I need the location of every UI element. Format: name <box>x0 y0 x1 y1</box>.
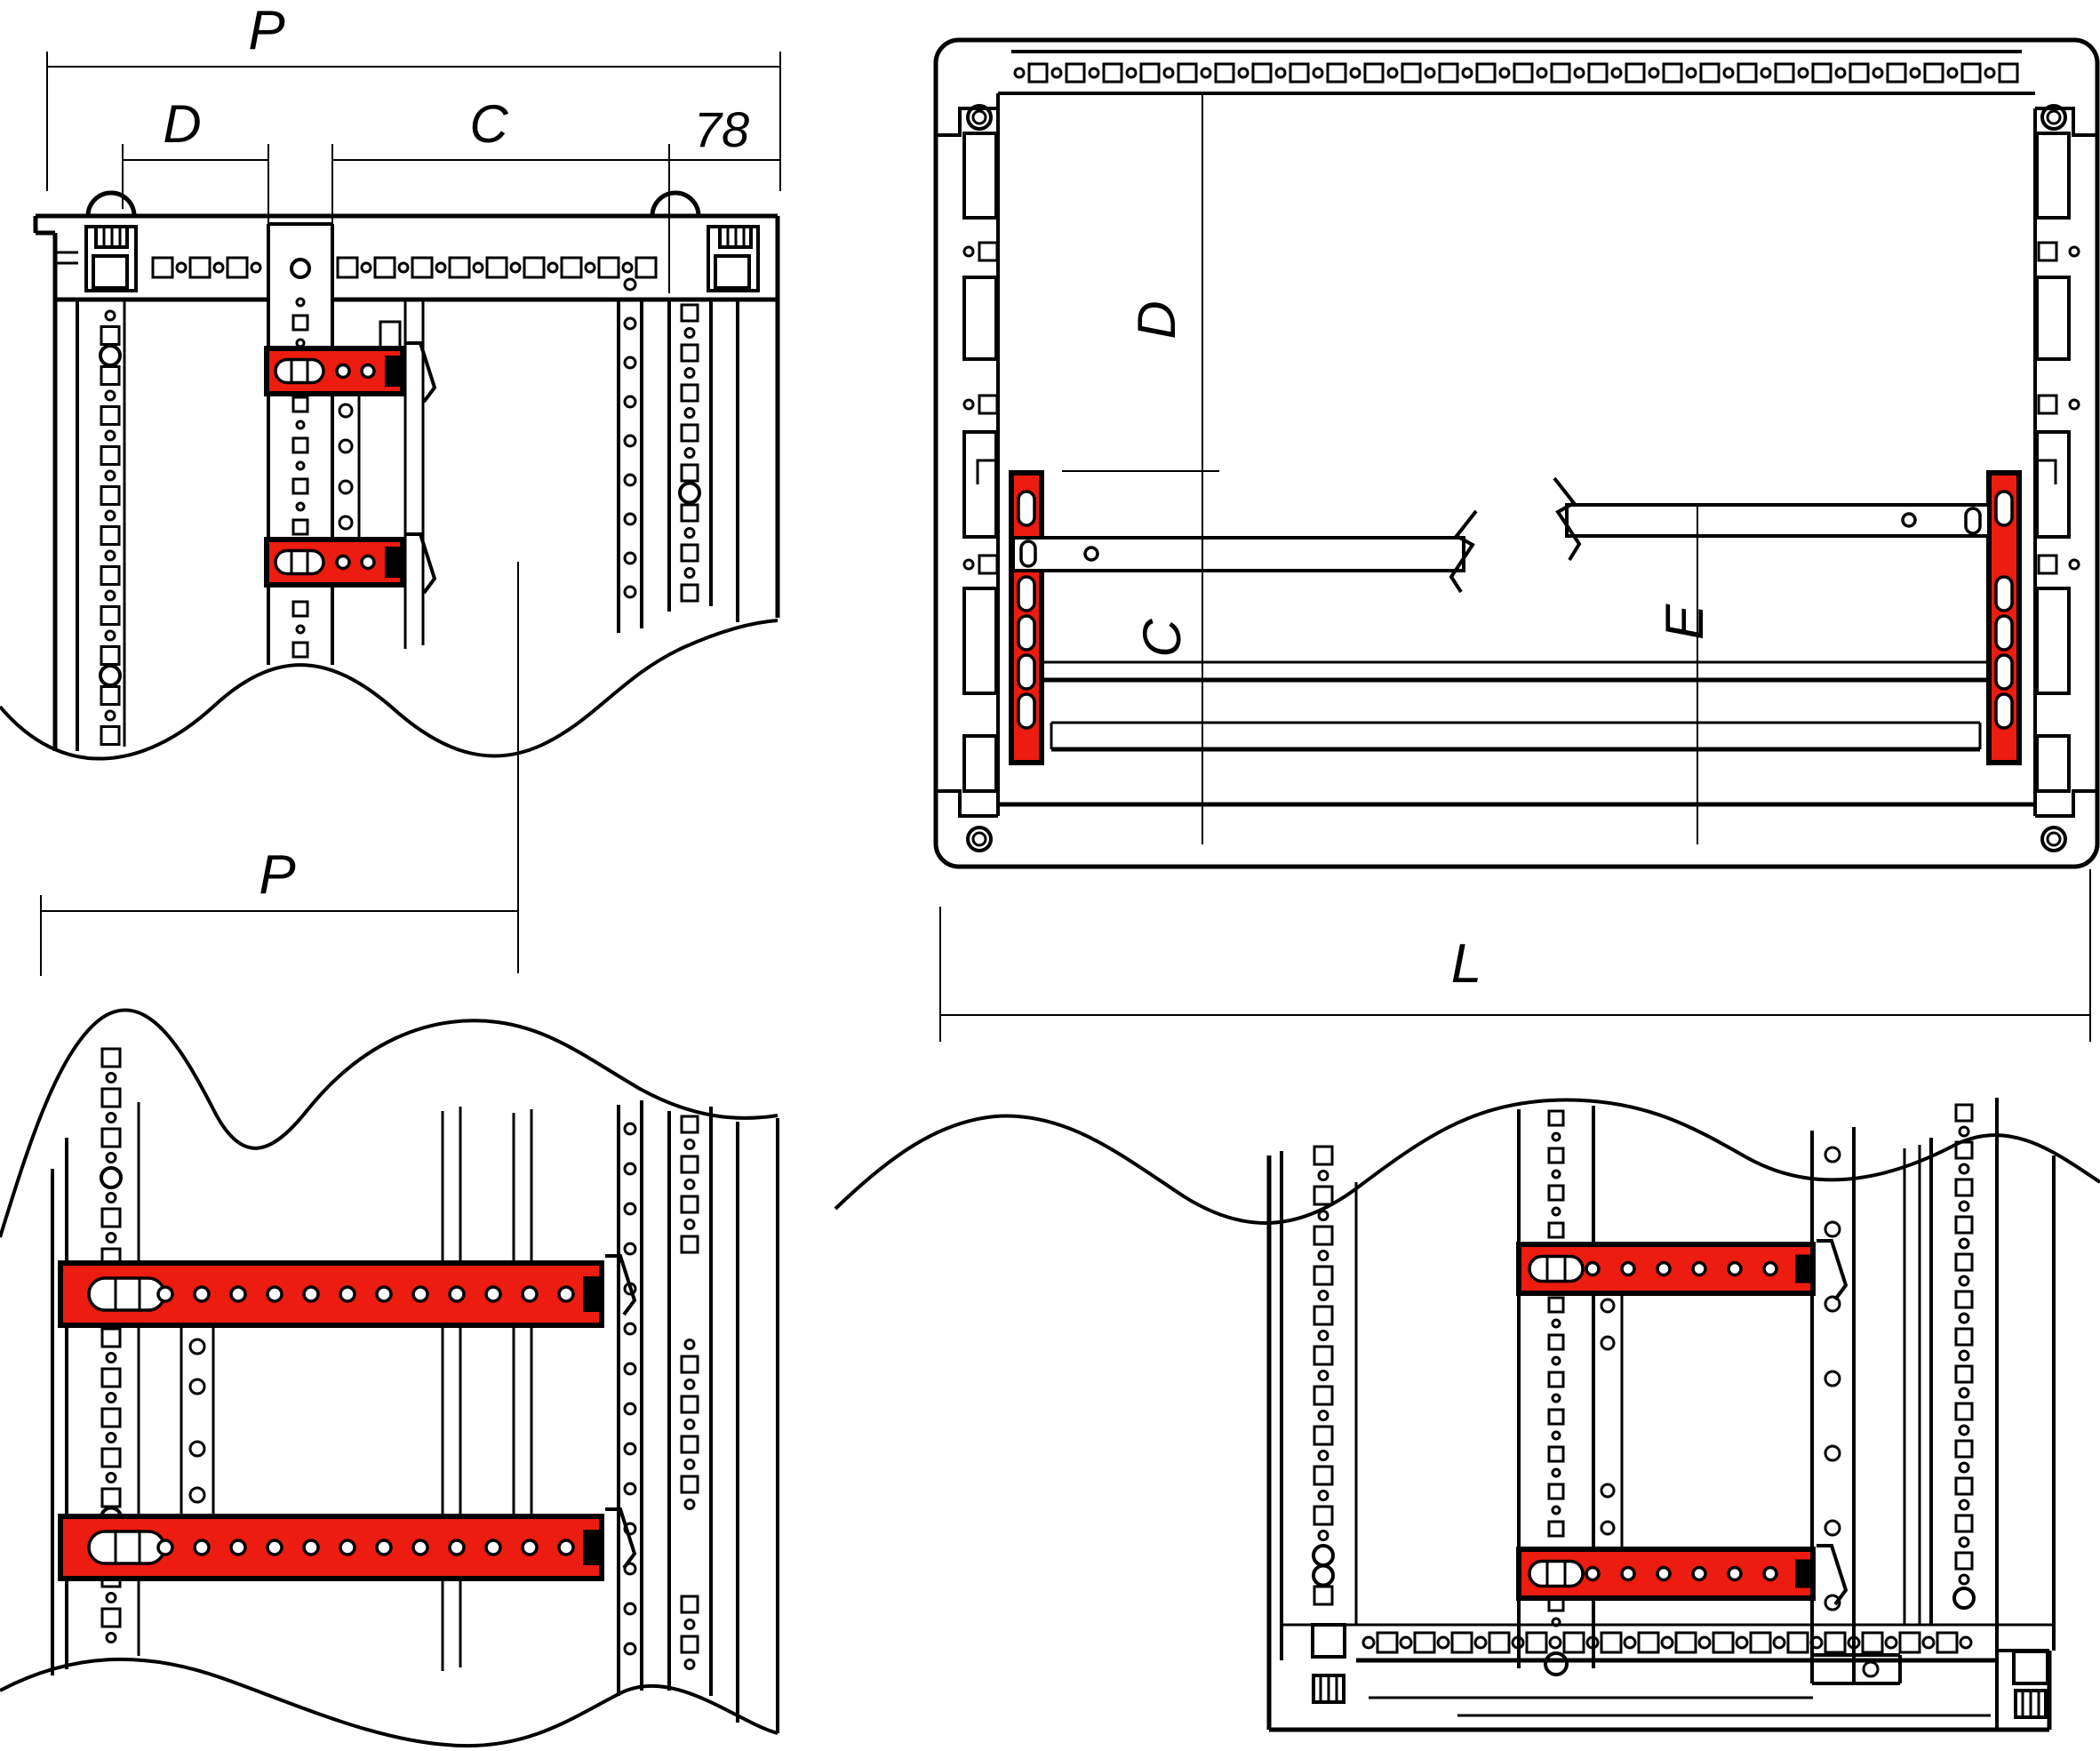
red-mounting-bracket <box>267 540 403 585</box>
red-mounting-bracket <box>60 1263 602 1325</box>
bottom-frame <box>1269 1625 2054 1730</box>
bottom-right-geometry <box>835 1098 2100 1731</box>
rail-hook-clip <box>1817 1241 1846 1299</box>
view-top-right-front: D C E L <box>936 40 2097 1042</box>
red-mounting-bracket <box>1519 1549 1813 1598</box>
right-rails <box>619 1100 778 1733</box>
left-perforated-rail <box>1313 1147 1356 1625</box>
red-mounting-bracket <box>1519 1244 1813 1293</box>
bottom-left-geometry <box>0 562 778 1746</box>
break-wave-bottom <box>0 1659 778 1746</box>
left-perforated-rail <box>77 300 124 751</box>
left-perforated-rail <box>52 1049 139 1675</box>
break-wave-top <box>835 1100 2100 1223</box>
dim-label-d-top-right: D <box>1127 300 1186 339</box>
view-bottom-left-detail: P <box>0 562 778 1746</box>
din-rail-vertical <box>268 224 359 665</box>
dim-label-l: L <box>1451 933 1481 995</box>
rail-hook-clip <box>405 343 435 402</box>
dim-label-c-top-right: C <box>1132 619 1192 658</box>
dim-label-p-bottom-left: P <box>259 844 295 906</box>
top-left-geometry <box>0 52 780 759</box>
red-mounting-bracket-vertical <box>1989 473 2019 763</box>
bottom-rails <box>936 662 2097 851</box>
dim-label-d-top-left: D <box>163 94 201 154</box>
dim-label-e: E <box>1655 604 1714 640</box>
view-bottom-right-detail <box>835 1098 2100 1731</box>
rail-hook-clip <box>405 534 435 593</box>
dim-label-c-top-left: C <box>469 94 508 154</box>
top-right-geometry <box>936 40 2097 1042</box>
dim-label-78: 78 <box>694 101 749 157</box>
support-strip <box>181 1325 213 1516</box>
red-mounting-bracket <box>60 1516 602 1579</box>
red-mounting-bracket <box>267 348 403 394</box>
mid-rails <box>443 1107 531 1671</box>
side-strip-cutouts <box>964 133 2079 791</box>
break-wave-top <box>0 1010 778 1237</box>
depth-rails <box>1013 478 1989 592</box>
dim-label-p-top-left: P <box>248 0 284 61</box>
enclosure-outline <box>936 40 2097 867</box>
view-top-left-detail: P D C 78 <box>0 0 780 759</box>
right-circle-rail <box>1812 1127 1900 1683</box>
drawing-canvas: P D C 78 D C E L P <box>0 0 2100 1751</box>
red-mounting-bracket-vertical <box>1011 473 1042 763</box>
technical-drawing: P D C 78 D C E L P <box>0 0 2100 1751</box>
left-edge <box>1269 1151 1282 1730</box>
break-wave <box>0 620 778 759</box>
